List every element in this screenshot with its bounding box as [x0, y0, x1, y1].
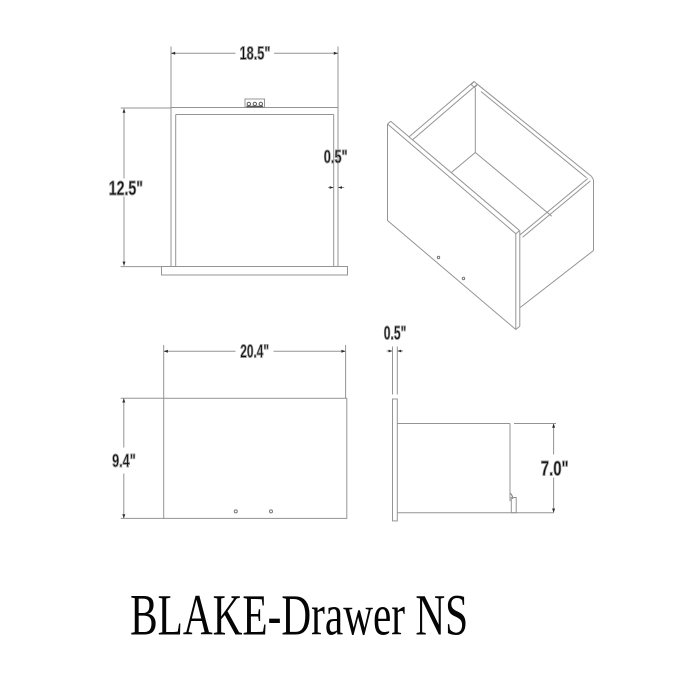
- svg-text:9.4": 9.4": [112, 451, 136, 471]
- svg-text:BLAKE-Drawer NS: BLAKE-Drawer NS: [130, 583, 468, 648]
- svg-text:0.5": 0.5": [384, 324, 407, 345]
- svg-text:0.5": 0.5": [324, 147, 348, 167]
- svg-text:20.4": 20.4": [240, 342, 269, 362]
- svg-text:7.0": 7.0": [541, 458, 569, 481]
- svg-text:18.5": 18.5": [240, 43, 271, 63]
- svg-text:12.5": 12.5": [109, 178, 143, 200]
